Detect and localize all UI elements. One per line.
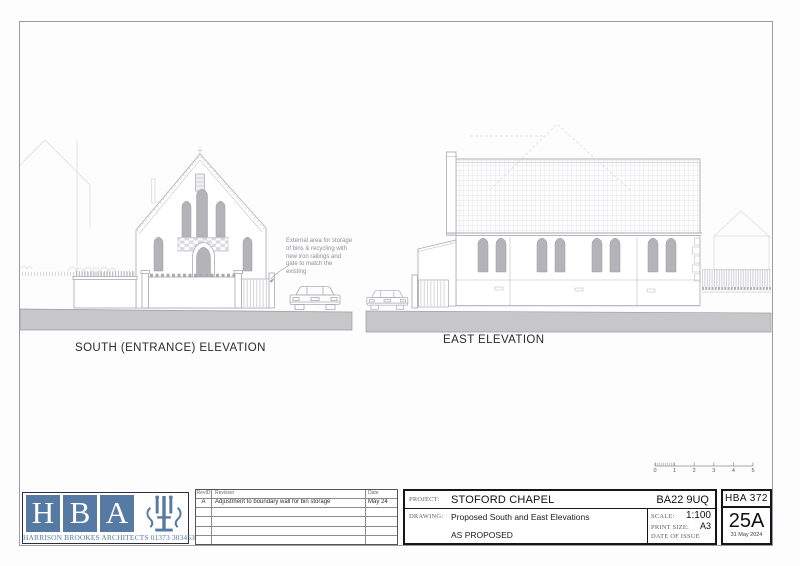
boundary-wall xyxy=(74,279,136,308)
revision-header-text: Revision xyxy=(212,490,366,498)
ground-band xyxy=(20,309,352,330)
revision-table: RevID Revision Date A Adjustment to boun… xyxy=(195,489,398,545)
scale-tick-label: 3 xyxy=(709,468,719,474)
background-building-outline xyxy=(714,211,771,238)
scale-bar xyxy=(655,463,753,467)
revision-row-empty xyxy=(196,508,397,517)
lancet-window xyxy=(154,237,163,271)
lancet-window xyxy=(666,238,676,272)
chapel-side-wall xyxy=(456,236,700,306)
lancet-window xyxy=(610,238,620,272)
entrance-door xyxy=(197,247,211,279)
bin-storage-annotation: External area for storage of bins & recy… xyxy=(286,238,354,277)
revision-row-empty xyxy=(196,527,397,536)
scale-tick-label: 1 xyxy=(670,468,680,474)
drawing-title: Proposed South and East Elevations xyxy=(451,512,589,522)
hba-logo-letter: B xyxy=(63,495,97,532)
job-number: HBA 372 xyxy=(723,491,770,508)
lancet-window xyxy=(197,189,208,237)
lancet-window xyxy=(182,201,191,237)
gate-pier xyxy=(412,275,418,308)
hba-logo-letter: H xyxy=(26,495,60,532)
lancet-window xyxy=(216,201,225,237)
gable-louvre xyxy=(196,174,205,191)
revision-date: May 24 xyxy=(366,499,397,507)
gate-pier xyxy=(235,272,242,308)
lancet-window xyxy=(592,238,602,272)
scale-tick-label: 4 xyxy=(728,468,738,474)
revision-table-header: RevID Revision Date xyxy=(196,490,397,499)
boundary-wall xyxy=(149,277,237,308)
revision-header-id: RevID xyxy=(196,490,212,498)
revision-description: Adjustment to boundary wall for bin stor… xyxy=(212,499,366,507)
background-building-outline xyxy=(20,140,90,228)
print-size-label: PRINT SIZE: xyxy=(651,524,689,531)
drawing-label: DRAWING: xyxy=(409,513,443,520)
sheet-number-box: HBA 372 25A 31 May 2024 xyxy=(721,489,772,545)
gate-pier xyxy=(142,272,149,308)
scale-tick-label: 0 xyxy=(650,468,660,474)
tiled-roof xyxy=(456,159,700,233)
east-elevation-drawing xyxy=(366,124,771,332)
car-icon xyxy=(290,287,340,310)
revision-row: A Adjustment to boundary wall for bin st… xyxy=(196,499,397,508)
revision-header-date: Date xyxy=(366,490,397,498)
hba-ornament-icon xyxy=(141,494,187,533)
scale-tick-label: 5 xyxy=(748,468,758,474)
scale-value: 1:100 xyxy=(686,510,711,521)
shrubs-outline xyxy=(21,266,116,271)
scale-label: SCALE: xyxy=(651,513,675,520)
firm-name-line: HARRISON BROOKES ARCHITECTS 01373 303453 xyxy=(23,533,188,542)
hba-logo-box: H B A HARRISON BROOKES ARCHITECTS 01373 … xyxy=(22,492,189,544)
lancet-window xyxy=(555,238,565,272)
project-info-box: PROJECT: STOFORD CHAPEL BA22 9UQ DRAWING… xyxy=(403,489,717,545)
elevation-linework xyxy=(0,0,800,566)
project-label: PROJECT: xyxy=(409,496,451,503)
lancet-window xyxy=(537,238,547,272)
sheet-number: 25A xyxy=(723,510,770,532)
hba-logo: H B A xyxy=(26,495,134,532)
car-icon xyxy=(367,290,408,309)
chimney xyxy=(447,152,457,235)
lancet-window xyxy=(243,237,252,271)
east-elevation-label: EAST ELEVATION xyxy=(443,334,544,346)
revision-row-empty xyxy=(196,517,397,526)
issue-date: 31 May 2024 xyxy=(723,532,770,538)
project-name: STOFORD CHAPEL xyxy=(451,494,554,506)
gable-finial xyxy=(197,147,203,154)
bin-storage-railings xyxy=(242,279,270,308)
scale-tick-label: 2 xyxy=(689,468,699,474)
south-elevation-label: SOUTH (ENTRANCE) ELEVATION xyxy=(75,342,266,354)
ground-band xyxy=(366,311,771,332)
revision-row-empty xyxy=(196,536,397,544)
project-postcode: BA22 9UQ xyxy=(656,494,709,506)
lancet-window xyxy=(648,238,658,272)
date-of-issue-label: DATE OF ISSUE xyxy=(651,533,700,540)
lancet-window xyxy=(478,238,488,272)
print-size-value: A3 xyxy=(700,521,711,531)
south-elevation-drawing xyxy=(20,140,352,330)
drawing-status: AS PROPOSED xyxy=(451,530,513,540)
revision-id: A xyxy=(196,499,212,507)
hba-logo-letter: A xyxy=(100,495,134,532)
lancet-window xyxy=(496,238,506,272)
